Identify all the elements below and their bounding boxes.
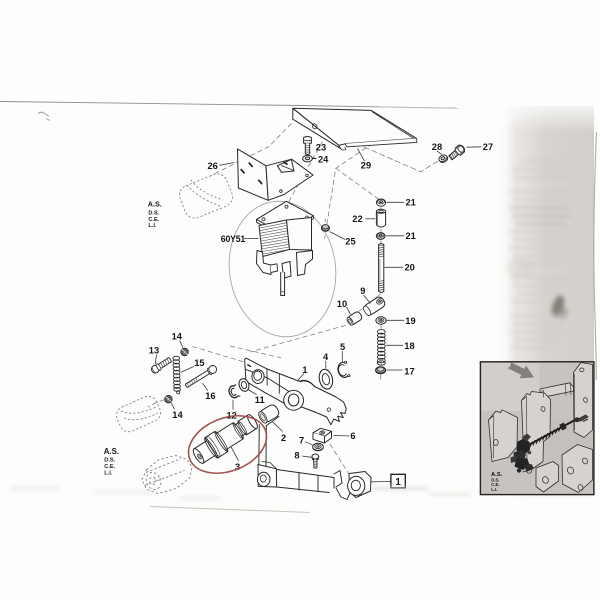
svg-text:L.I.: L.I. bbox=[148, 223, 157, 229]
svg-text:D.S.: D.S. bbox=[148, 211, 159, 217]
svg-text:5: 5 bbox=[340, 342, 345, 352]
svg-text:19: 19 bbox=[405, 316, 415, 326]
svg-text:60Y51: 60Y51 bbox=[221, 234, 246, 244]
svg-text:A.S.: A.S. bbox=[104, 447, 119, 456]
svg-text:10: 10 bbox=[337, 299, 347, 309]
svg-text:13: 13 bbox=[149, 345, 159, 355]
svg-text:16: 16 bbox=[205, 391, 215, 401]
svg-text:18: 18 bbox=[404, 341, 414, 351]
svg-text:C.E.: C.E. bbox=[148, 217, 159, 223]
svg-text:4: 4 bbox=[323, 352, 329, 362]
svg-text:21: 21 bbox=[406, 198, 416, 208]
svg-text:24: 24 bbox=[318, 155, 329, 165]
svg-text:22: 22 bbox=[352, 214, 362, 224]
svg-text:27: 27 bbox=[483, 142, 493, 152]
svg-text:25: 25 bbox=[345, 237, 355, 247]
svg-text:C.E.: C.E. bbox=[104, 464, 115, 470]
svg-text:28: 28 bbox=[432, 142, 442, 152]
svg-text:8: 8 bbox=[294, 451, 299, 461]
svg-text:20: 20 bbox=[405, 263, 415, 273]
svg-text:7: 7 bbox=[299, 436, 304, 446]
svg-text:14: 14 bbox=[172, 331, 183, 341]
svg-text:A.S.: A.S. bbox=[148, 200, 162, 209]
svg-text:2: 2 bbox=[281, 433, 286, 443]
svg-text:1: 1 bbox=[395, 477, 401, 488]
svg-text:L.I.: L.I. bbox=[491, 487, 497, 492]
svg-text:26: 26 bbox=[208, 161, 218, 171]
svg-text:11: 11 bbox=[255, 395, 265, 405]
svg-text:14: 14 bbox=[172, 410, 183, 420]
svg-text:15: 15 bbox=[194, 358, 204, 368]
svg-text:D.S.: D.S. bbox=[104, 457, 115, 463]
svg-text:9: 9 bbox=[360, 286, 365, 296]
svg-text:6: 6 bbox=[350, 431, 355, 441]
svg-text:29: 29 bbox=[361, 161, 371, 171]
svg-text:17: 17 bbox=[404, 366, 414, 376]
svg-text:L.I.: L.I. bbox=[104, 470, 113, 476]
svg-text:1: 1 bbox=[302, 365, 307, 375]
svg-text:21: 21 bbox=[406, 231, 416, 241]
svg-text:23: 23 bbox=[316, 142, 326, 152]
